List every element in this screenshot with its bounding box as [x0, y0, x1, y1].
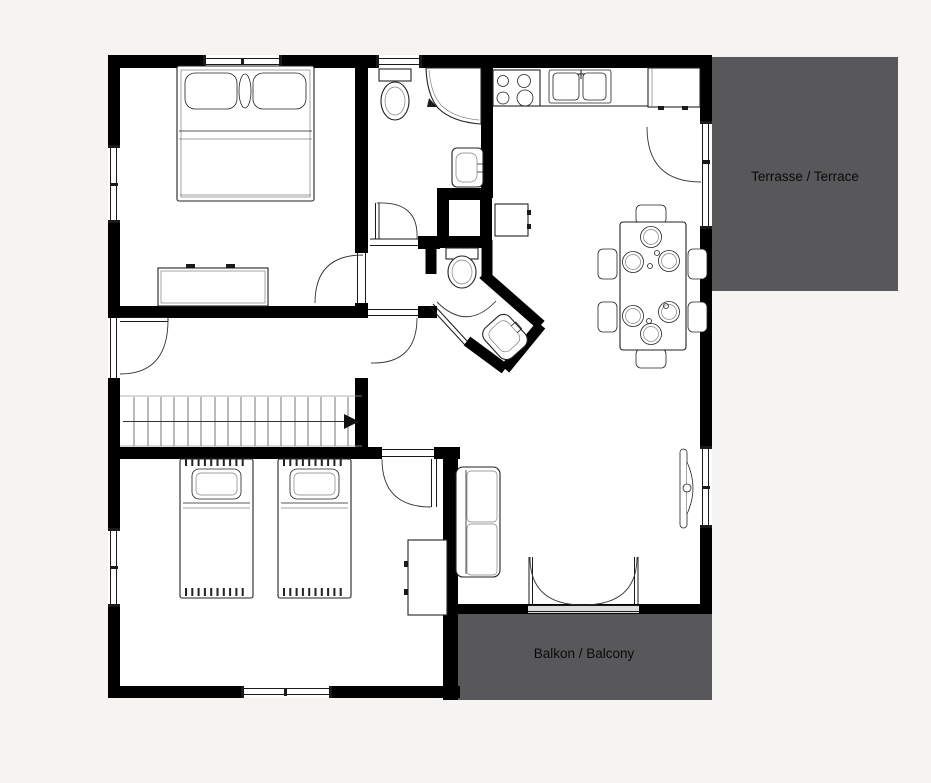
sofa [456, 467, 500, 577]
glazing-terrace-door [700, 121, 712, 229]
pillow [185, 73, 237, 109]
handle [404, 589, 408, 595]
stove [493, 70, 540, 106]
single-bed [278, 459, 351, 598]
dresser [158, 264, 268, 306]
chair [636, 205, 666, 224]
window-bedroom1-left [108, 145, 120, 223]
handle [404, 561, 408, 567]
toilet [446, 248, 478, 288]
dining-table [620, 222, 686, 350]
window-bathroom-top [376, 55, 422, 68]
wall-stairs-south [108, 447, 382, 459]
chair [688, 249, 707, 279]
floor-plan-page: Terrasse / Terrace Balkon / Balcony [0, 0, 931, 783]
pillow [253, 73, 306, 109]
kitchen-sink [549, 70, 611, 103]
pillow-fold [239, 74, 251, 108]
wall-cabinet [495, 204, 531, 236]
handle [186, 264, 195, 268]
chair [598, 302, 617, 332]
window-bedroom2-left [108, 528, 120, 607]
chair [598, 249, 617, 279]
terrace-label: Terrasse / Terrace [751, 169, 859, 184]
wall-hall-landing [355, 378, 368, 459]
single-bed [180, 459, 253, 598]
balcony-label: Balkon / Balcony [534, 646, 635, 661]
window-living-right [700, 446, 712, 528]
tall-cabinet [648, 68, 700, 110]
toilet [379, 69, 411, 120]
shaft-inner [449, 200, 480, 236]
wash-basin [452, 148, 483, 187]
handle [226, 264, 235, 268]
chair [688, 302, 707, 332]
floor-plan-drawing: Terrasse / Terrace Balkon / Balcony [0, 0, 931, 783]
wall-bedroom1-south [108, 306, 368, 318]
chair [636, 349, 666, 368]
window-bedroom2-bottom [241, 686, 332, 698]
double-bed [177, 66, 314, 201]
wardrobe [404, 540, 447, 615]
